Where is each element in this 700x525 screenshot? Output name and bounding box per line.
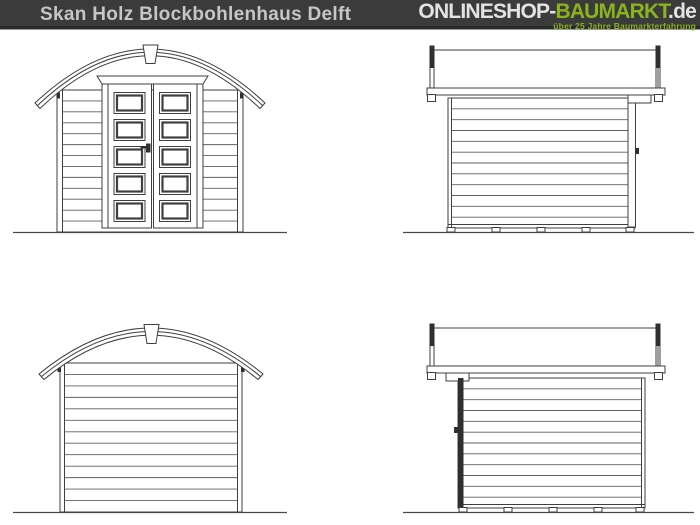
door-jamb-step — [628, 95, 651, 103]
roof-slab — [434, 328, 658, 366]
side-elevation-right-view — [403, 46, 694, 233]
technical-drawing-canvas — [0, 0, 700, 525]
roof-slab — [434, 50, 658, 88]
rear-wall — [60, 363, 242, 512]
rear-elevation-view — [13, 325, 287, 513]
roof-fascia-edge-left — [430, 46, 435, 69]
roof-keystone — [144, 325, 159, 344]
roof-keystone — [143, 45, 158, 64]
door-handle — [146, 144, 151, 153]
roof-fascia-edge-right — [656, 46, 661, 69]
door-jamb-trim-dark — [458, 378, 464, 508]
roof-fascia-edge-right — [656, 324, 661, 347]
front-door-windows-left — [114, 93, 145, 222]
door-jamb-trim — [628, 103, 636, 227]
front-door-windows-right — [160, 93, 191, 222]
door-lintel — [97, 76, 208, 84]
door-jamb-step — [446, 373, 469, 381]
door-frame-left — [102, 84, 108, 228]
door-frame-right — [197, 84, 203, 228]
roof-eave-band — [427, 366, 665, 373]
front-elevation-view — [13, 45, 287, 233]
side-door-handle — [636, 148, 640, 154]
side-door-handle — [454, 427, 458, 433]
side-elevation-left-view — [403, 324, 694, 513]
roof-fascia-edge-left — [430, 324, 435, 347]
roof-eave-band — [427, 88, 665, 95]
